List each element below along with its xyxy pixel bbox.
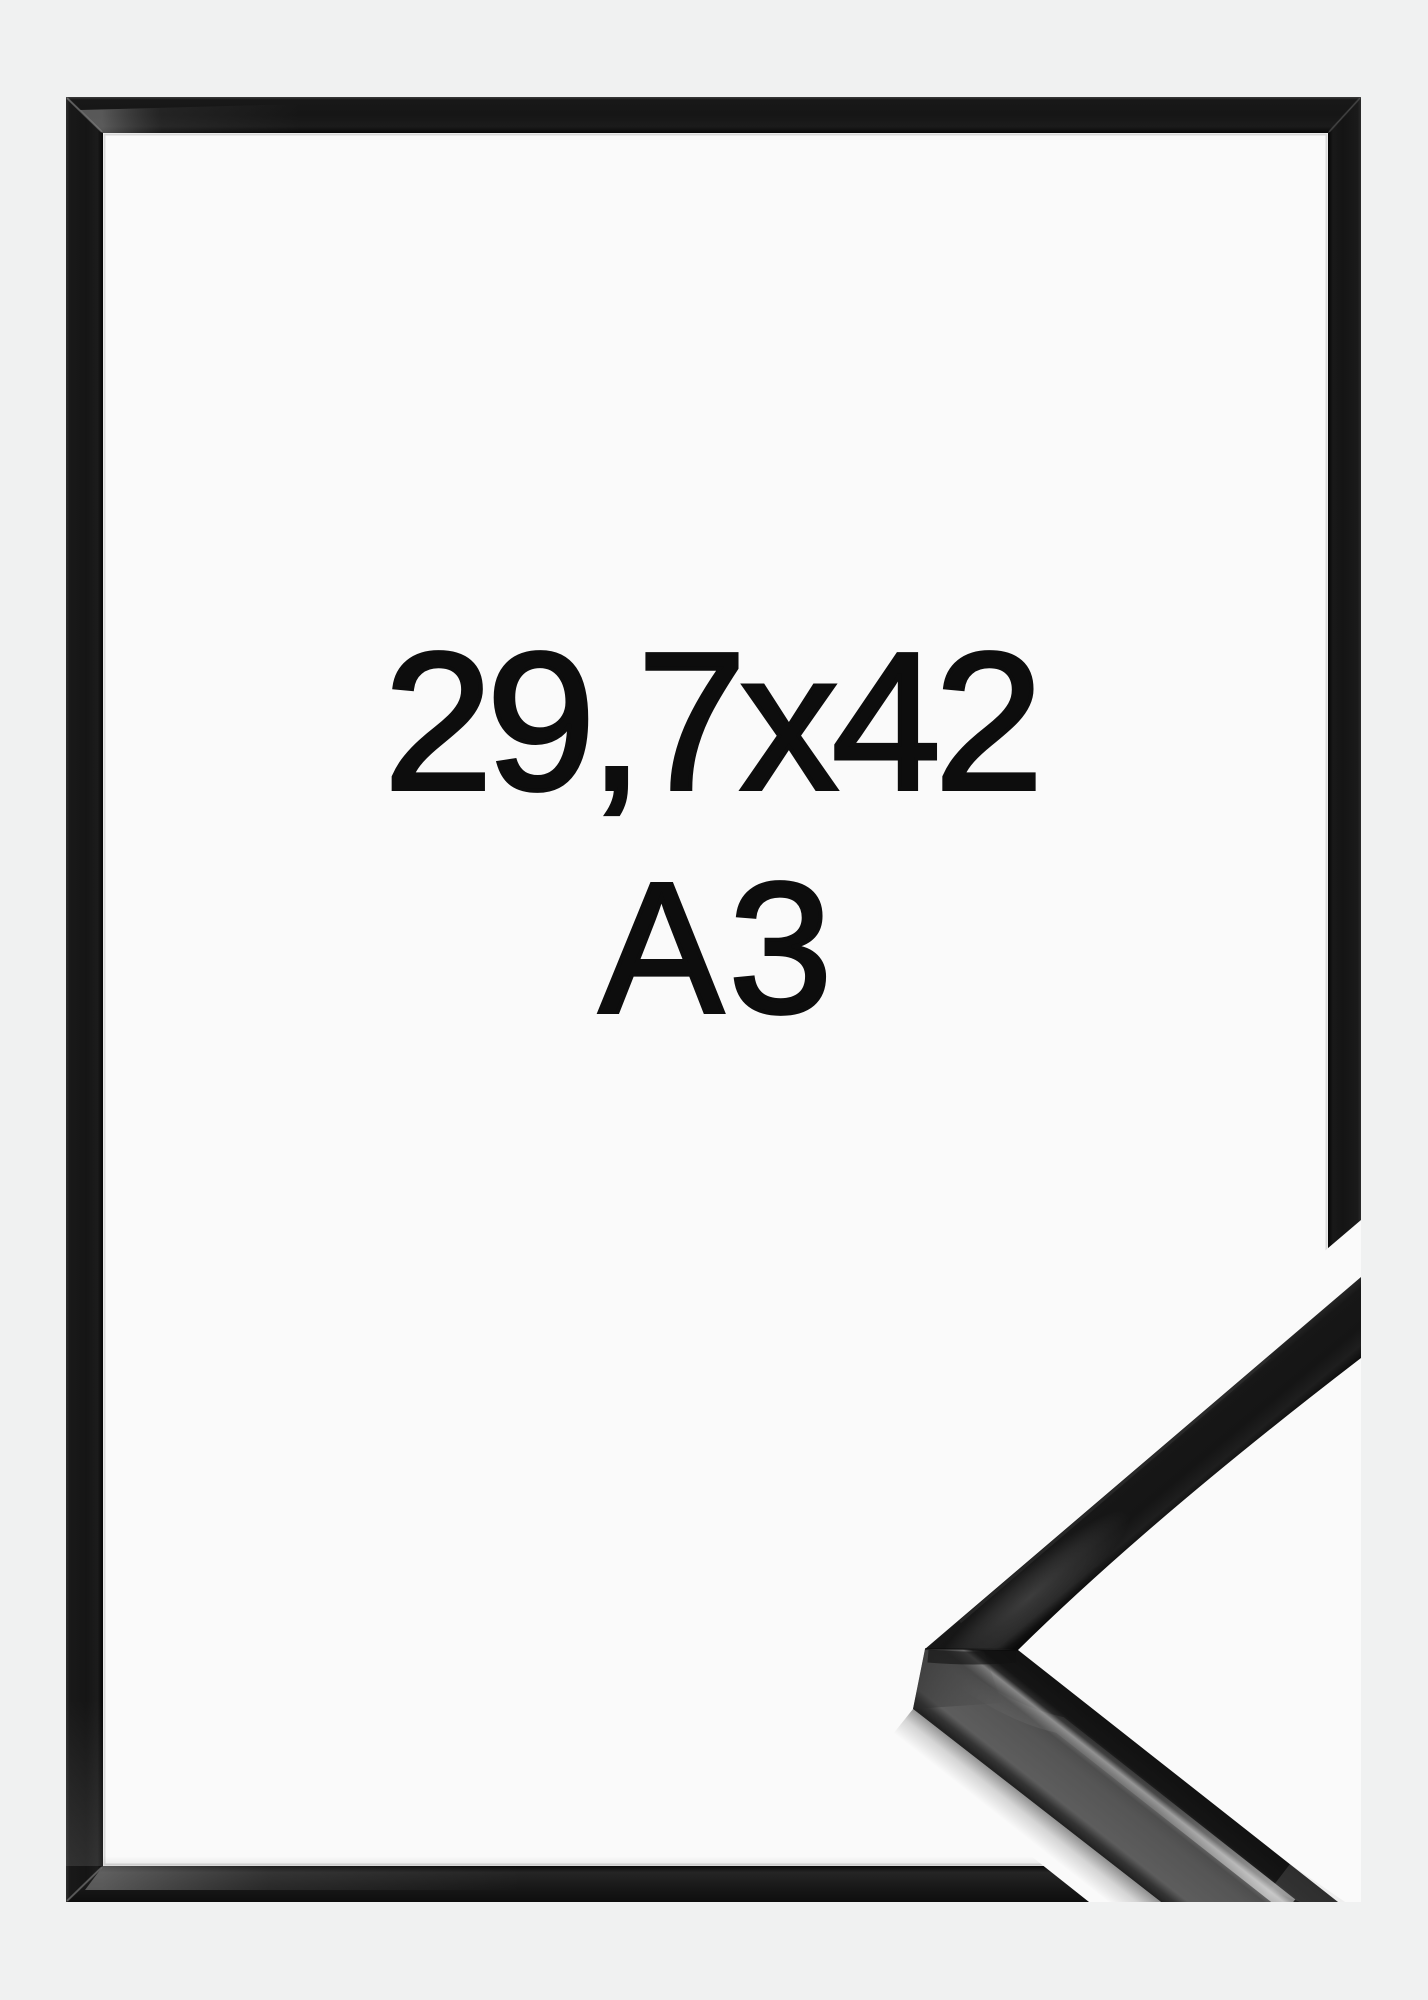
svg-text:A3: A3 [599,845,838,1052]
svg-text:29,7x42: 29,7x42 [384,612,1037,831]
